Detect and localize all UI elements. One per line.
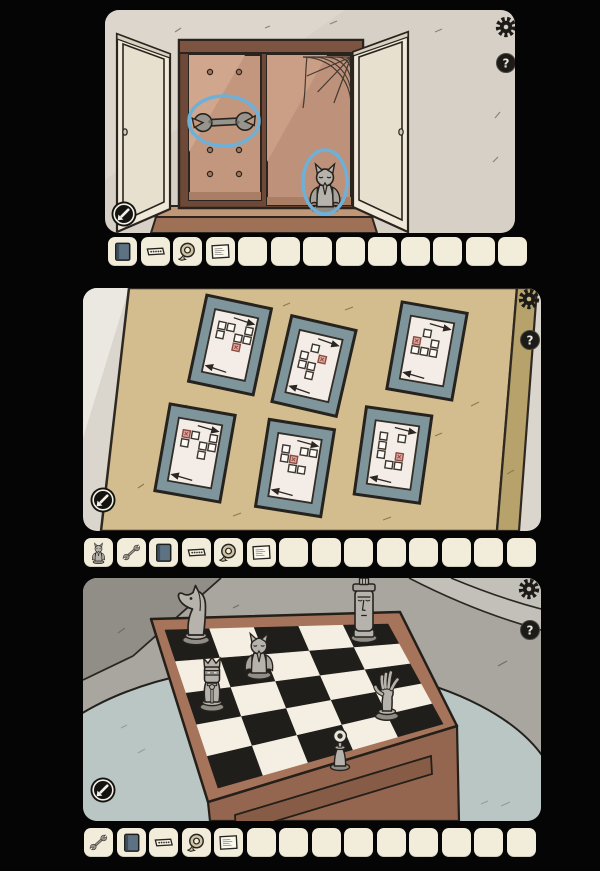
wrench-icon — [87, 831, 110, 854]
picture-frame-4[interactable] — [155, 404, 235, 502]
chess-piece-moai[interactable] — [351, 578, 377, 643]
inventory-item-code-strip[interactable] — [141, 237, 170, 266]
scene-cabinet-room: ? — [105, 10, 515, 233]
inventory-item-chess-figure[interactable] — [84, 538, 113, 567]
help-icon[interactable]: ? — [497, 54, 516, 73]
inventory-slot-empty — [247, 828, 276, 857]
inventory-slot-empty — [271, 237, 300, 266]
inventory-slot-empty — [474, 828, 503, 857]
picture-frame-6[interactable] — [354, 407, 432, 503]
notebook-icon — [152, 541, 175, 564]
inventory-slot-empty — [368, 237, 397, 266]
chess-figure-icon — [87, 541, 110, 564]
scene-frames-wall: ? — [83, 288, 541, 531]
inventory-item-tape-roll[interactable] — [214, 538, 243, 567]
inventory-item-code-strip[interactable] — [182, 538, 211, 567]
inventory-item-tape-roll[interactable] — [182, 828, 211, 857]
svg-text:?: ? — [503, 57, 510, 71]
tape-roll-icon — [185, 831, 208, 854]
inventory-item-letter[interactable] — [247, 538, 276, 567]
inventory-slot-empty — [474, 538, 503, 567]
notebook-icon — [120, 831, 143, 854]
picture-frame-3[interactable] — [387, 302, 467, 400]
inventory-item-notebook[interactable] — [117, 828, 146, 857]
inventory-slot-empty — [377, 538, 406, 567]
tape-roll-icon — [176, 240, 199, 263]
inventory-slot-empty — [279, 538, 308, 567]
inventory-slot-empty — [303, 237, 332, 266]
letter-icon — [217, 831, 240, 854]
inventory-slot-empty — [312, 538, 341, 567]
letter-icon — [250, 541, 273, 564]
inventory-slot-empty — [442, 538, 471, 567]
right-door-knob — [399, 129, 403, 135]
svg-text:?: ? — [527, 334, 534, 348]
code-strip-icon — [144, 240, 167, 263]
inventory-item-code-strip[interactable] — [149, 828, 178, 857]
inventory-slot-empty — [344, 538, 373, 567]
inventory-slot-empty — [336, 237, 365, 266]
back-button[interactable] — [112, 202, 137, 227]
help-icon[interactable]: ? — [521, 621, 540, 640]
back-button[interactable] — [91, 778, 116, 803]
inventory-item-letter[interactable] — [214, 828, 243, 857]
svg-text:?: ? — [527, 624, 534, 638]
inventory-item-letter[interactable] — [206, 237, 235, 266]
code-strip-icon — [185, 541, 208, 564]
inventory-slot-empty — [442, 828, 471, 857]
inventory-bar-2 — [84, 538, 536, 567]
inventory-slot-empty — [401, 237, 430, 266]
tape-roll-icon — [217, 541, 240, 564]
letter-icon — [209, 240, 232, 263]
right-door[interactable] — [353, 32, 408, 232]
inventory-slot-empty — [312, 828, 341, 857]
left-door-knob — [123, 129, 127, 135]
inventory-slot-empty — [498, 237, 527, 266]
scene-chessboard: ? — [83, 578, 541, 821]
inventory-slot-empty — [409, 828, 438, 857]
inventory-item-wrench[interactable] — [84, 828, 113, 857]
inventory-slot-empty — [279, 828, 308, 857]
inventory-slot-empty — [466, 237, 495, 266]
inventory-slot-empty — [507, 828, 536, 857]
notebook-icon — [111, 240, 134, 263]
inventory-bar-3 — [84, 828, 536, 857]
help-icon[interactable]: ? — [521, 331, 540, 350]
inventory-item-notebook[interactable] — [108, 237, 137, 266]
inventory-item-tape-roll[interactable] — [173, 237, 202, 266]
inventory-slot-empty — [238, 237, 267, 266]
inventory-slot-empty — [344, 828, 373, 857]
inventory-slot-empty — [377, 828, 406, 857]
inventory-bar-1 — [108, 237, 527, 266]
code-strip-icon — [152, 831, 175, 854]
wrench-icon — [120, 541, 143, 564]
inventory-slot-empty — [409, 538, 438, 567]
back-button[interactable] — [91, 488, 116, 513]
inventory-slot-empty — [507, 538, 536, 567]
picture-frame-5[interactable] — [256, 419, 335, 516]
inventory-slot-empty — [433, 237, 462, 266]
cabinet-shelf — [151, 206, 377, 233]
inventory-item-wrench[interactable] — [117, 538, 146, 567]
inventory-item-notebook[interactable] — [149, 538, 178, 567]
left-compartment-floor — [189, 192, 261, 200]
